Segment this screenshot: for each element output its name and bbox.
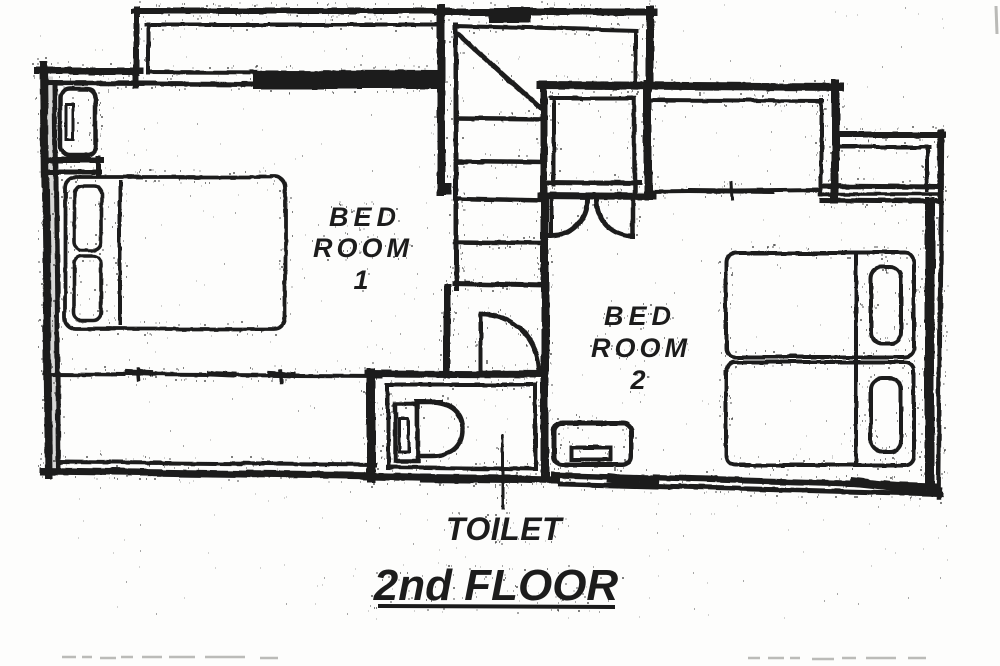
svg-text:TOILET: TOILET xyxy=(446,511,564,547)
svg-text:2: 2 xyxy=(629,365,645,395)
svg-text:BED: BED xyxy=(604,301,676,331)
svg-text:ROOM: ROOM xyxy=(591,333,691,363)
svg-text:1: 1 xyxy=(353,265,368,295)
svg-text:BED: BED xyxy=(329,202,401,232)
svg-text:2nd FLOOR: 2nd FLOOR xyxy=(373,561,619,610)
